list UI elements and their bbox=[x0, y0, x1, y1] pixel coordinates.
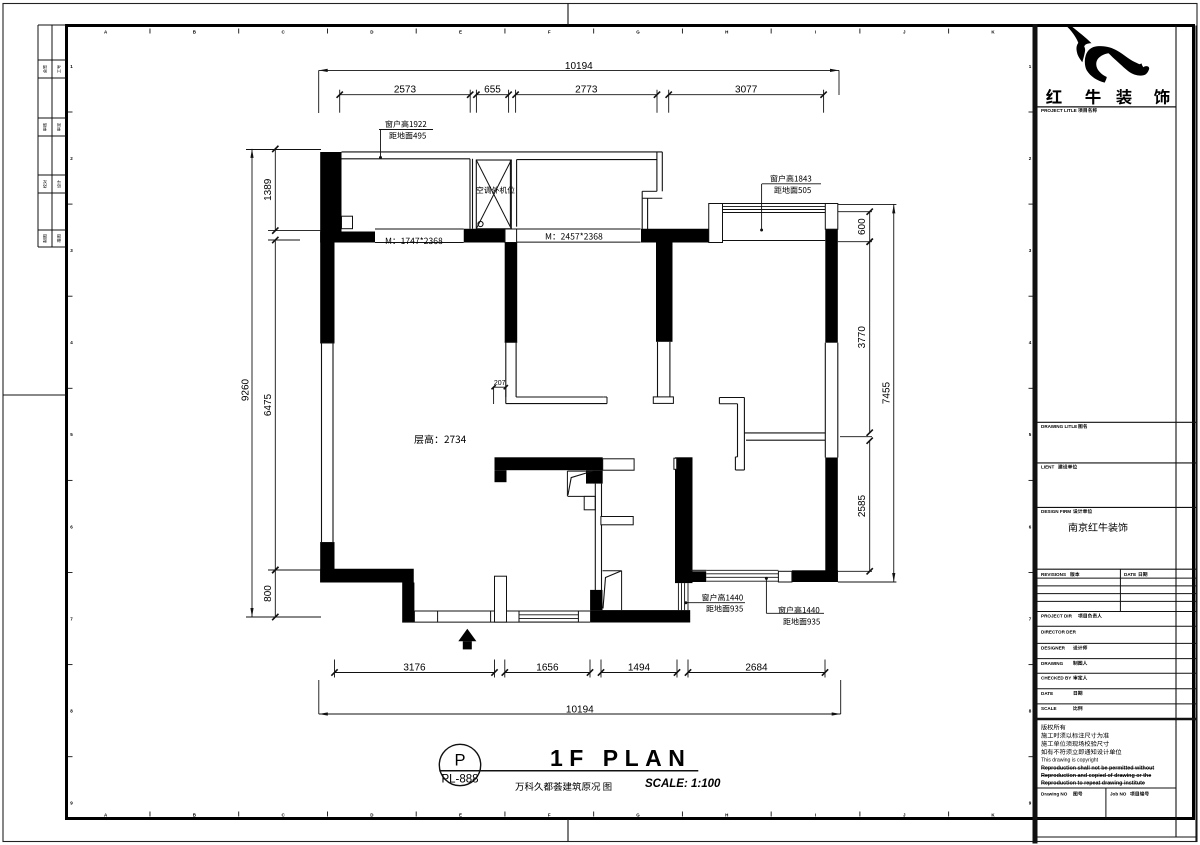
svg-text:G: G bbox=[636, 813, 640, 818]
svg-text:H: H bbox=[725, 30, 728, 35]
svg-text:DESIGN FIRM: DESIGN FIRM bbox=[1041, 509, 1071, 514]
svg-text:DRAWING LITLE: DRAWING LITLE bbox=[1041, 424, 1077, 429]
svg-text:Reproduction shall not be perm: Reproduction shall not be permitted with… bbox=[1041, 766, 1154, 772]
svg-text:I: I bbox=[815, 813, 816, 818]
svg-text:LIENT: LIENT bbox=[1041, 465, 1054, 470]
svg-text:F: F bbox=[548, 30, 551, 35]
svg-text:This drawing is copyright: This drawing is copyright bbox=[1041, 758, 1099, 764]
svg-text:800: 800 bbox=[263, 585, 274, 602]
svg-text:Reproduction and copied of dra: Reproduction and copied of drawing or th… bbox=[1041, 773, 1151, 779]
svg-text:SCALE: SCALE bbox=[1041, 706, 1057, 711]
svg-text:655: 655 bbox=[484, 85, 501, 96]
svg-text:1656: 1656 bbox=[536, 663, 559, 674]
svg-text:CHECKED BY: CHECKED BY bbox=[1041, 676, 1071, 681]
svg-text:3176: 3176 bbox=[403, 663, 426, 674]
svg-text:Drawing NO: Drawing NO bbox=[1041, 792, 1068, 797]
svg-text:2585: 2585 bbox=[857, 494, 868, 517]
svg-text:3077: 3077 bbox=[735, 85, 758, 96]
svg-text:2773: 2773 bbox=[575, 85, 598, 96]
svg-text:9260: 9260 bbox=[241, 378, 252, 401]
svg-text:1494: 1494 bbox=[628, 663, 651, 674]
svg-text:7455: 7455 bbox=[881, 381, 892, 404]
svg-text:Reproduction to repeat drawing: Reproduction to repeat drawing institute bbox=[1041, 781, 1145, 787]
svg-text:H: H bbox=[725, 813, 728, 818]
svg-text:10194: 10194 bbox=[565, 61, 593, 72]
svg-text:6475: 6475 bbox=[263, 393, 274, 416]
svg-text:Job NO: Job NO bbox=[1110, 792, 1127, 797]
svg-text:DATE: DATE bbox=[1124, 572, 1136, 577]
svg-text:DESIGNER: DESIGNER bbox=[1041, 646, 1066, 651]
svg-text:2684: 2684 bbox=[745, 663, 768, 674]
svg-text:G: G bbox=[636, 30, 640, 35]
svg-text:PROJECT DIR: PROJECT DIR bbox=[1041, 614, 1073, 619]
svg-text:DATE: DATE bbox=[1041, 691, 1053, 696]
svg-text:DIRECTOR DER: DIRECTOR DER bbox=[1041, 630, 1077, 635]
svg-text:PROJECT LITLE: PROJECT LITLE bbox=[1041, 108, 1077, 113]
svg-text:E: E bbox=[459, 813, 462, 818]
svg-text:1F PLAN: 1F PLAN bbox=[550, 745, 691, 771]
svg-text:REVISIONS: REVISIONS bbox=[1041, 572, 1066, 577]
svg-text:F: F bbox=[548, 813, 551, 818]
svg-text:E: E bbox=[459, 30, 462, 35]
svg-text:600: 600 bbox=[857, 218, 868, 235]
svg-text:3770: 3770 bbox=[857, 326, 868, 349]
svg-text:1389: 1389 bbox=[263, 178, 274, 201]
svg-text:2573: 2573 bbox=[394, 85, 417, 96]
svg-text:PL-888: PL-888 bbox=[441, 774, 478, 786]
svg-text:P: P bbox=[454, 752, 465, 770]
svg-text:SCALE: 1:100: SCALE: 1:100 bbox=[645, 778, 721, 790]
svg-text:I: I bbox=[815, 30, 816, 35]
svg-text:DRAWING: DRAWING bbox=[1041, 661, 1064, 666]
svg-text:10194: 10194 bbox=[566, 705, 594, 716]
